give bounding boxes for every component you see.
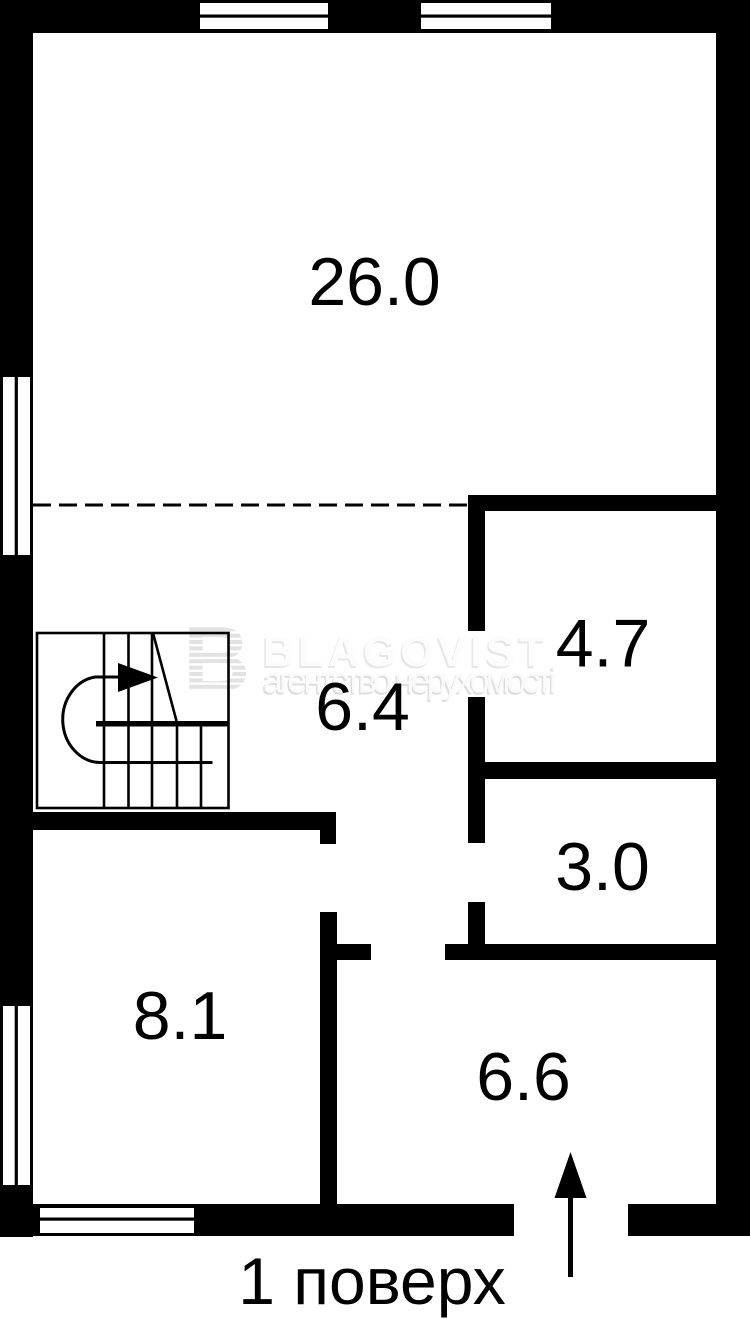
svg-text:1 поверх: 1 поверх bbox=[238, 1244, 505, 1318]
svg-text:26.0: 26.0 bbox=[308, 244, 440, 320]
svg-text:6.6: 6.6 bbox=[476, 1039, 571, 1115]
svg-text:B: B bbox=[183, 607, 250, 711]
svg-text:4.7: 4.7 bbox=[556, 606, 651, 682]
svg-text:3.0: 3.0 bbox=[555, 829, 650, 905]
svg-text:6.4: 6.4 bbox=[315, 669, 410, 745]
svg-text:агентство нерухомості: агентство нерухомості bbox=[263, 660, 557, 701]
svg-text:8.1: 8.1 bbox=[133, 978, 228, 1054]
